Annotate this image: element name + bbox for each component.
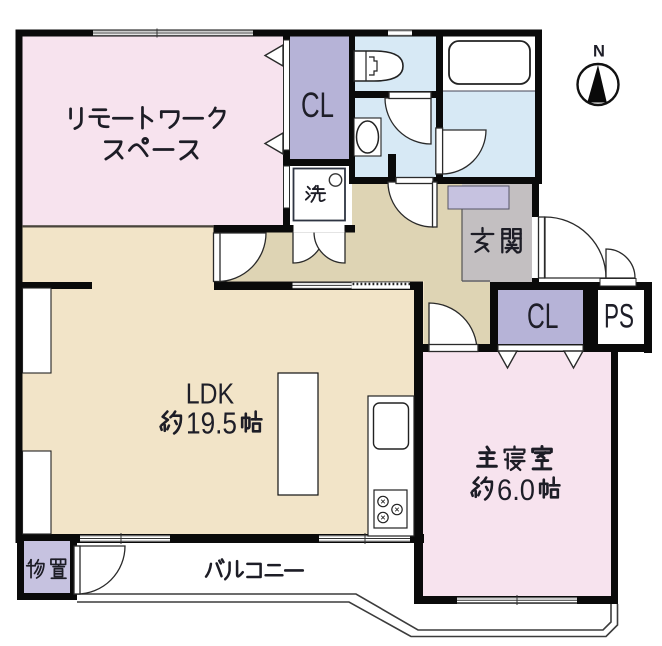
svg-text:PS: PS [604, 298, 634, 336]
svg-text:CL: CL [527, 297, 559, 336]
svg-text:6.0: 6.0 [497, 474, 535, 507]
svg-text:N: N [593, 43, 605, 61]
svg-text:19.5: 19.5 [186, 407, 237, 441]
svg-text:CL: CL [301, 86, 334, 125]
